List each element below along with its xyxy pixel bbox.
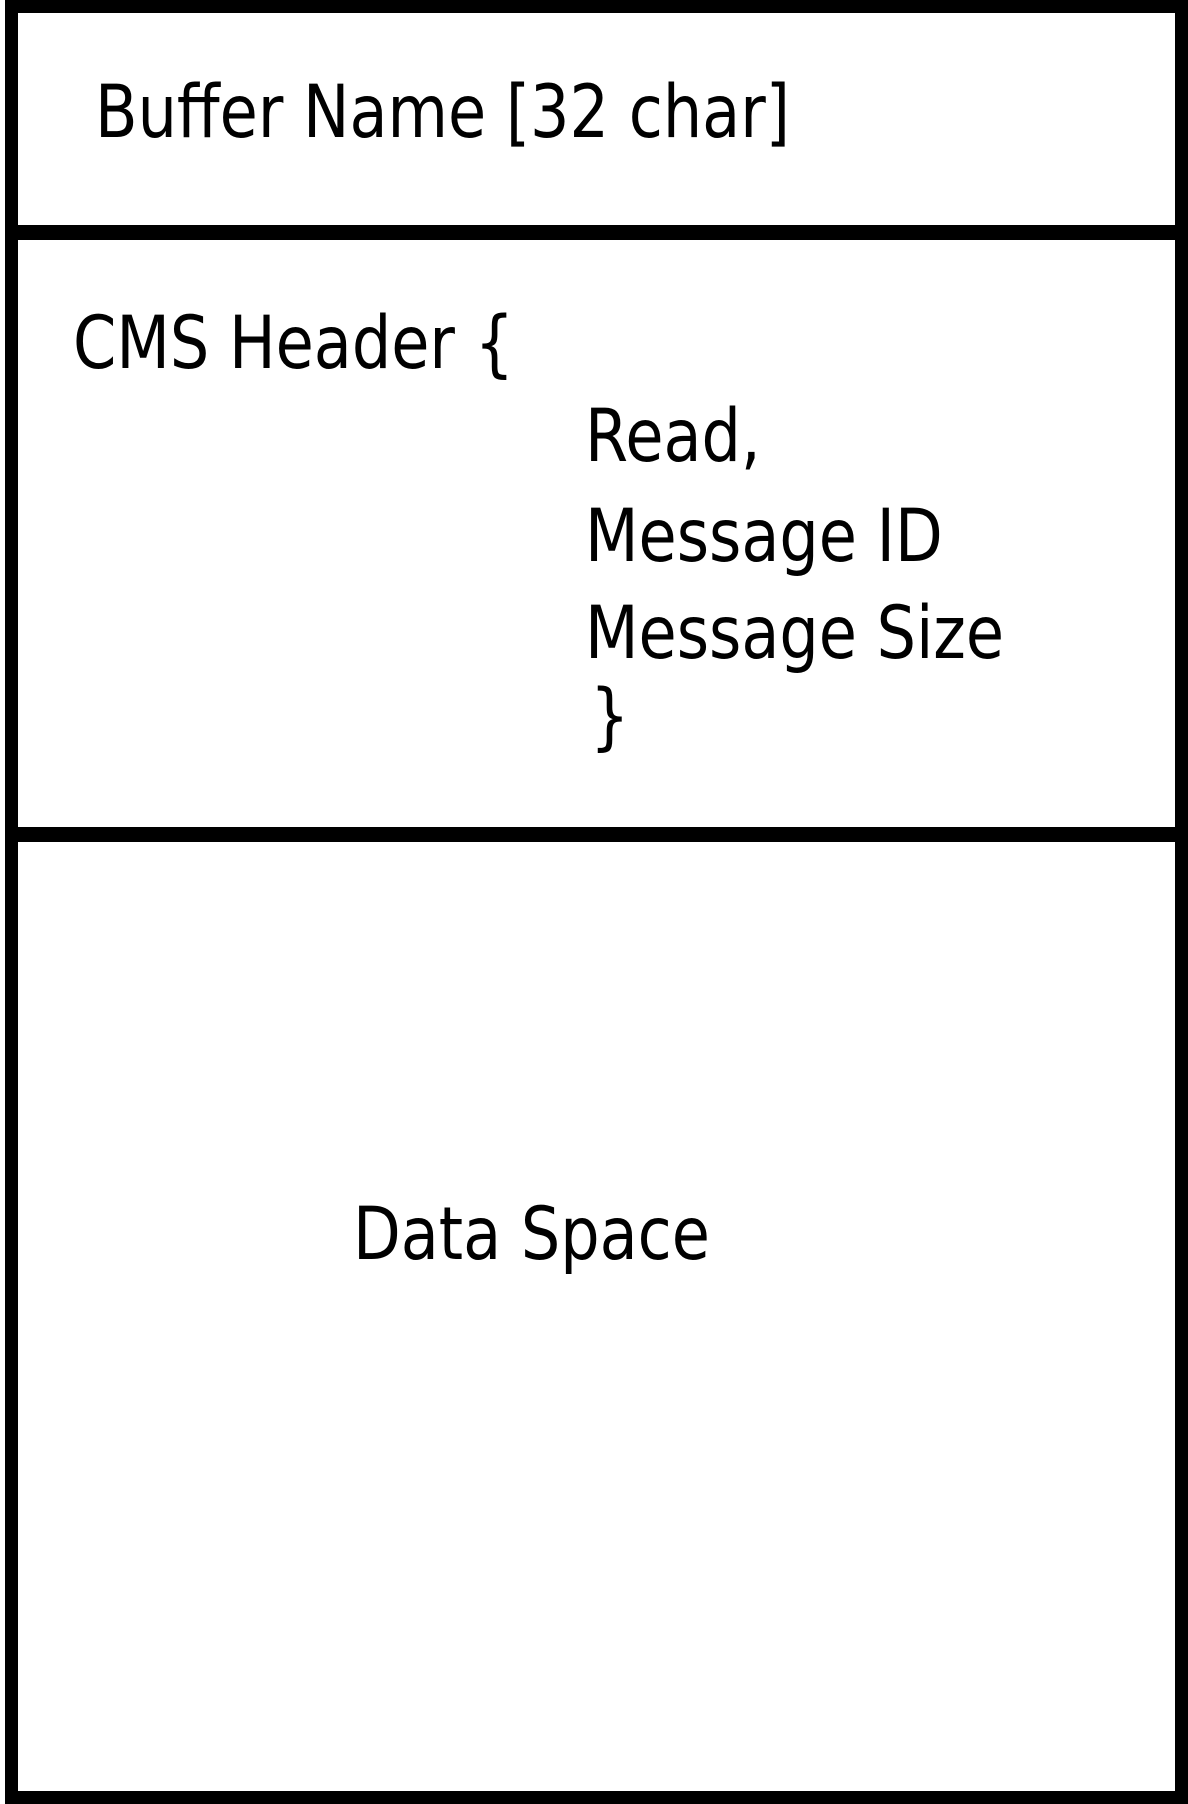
divider-name-header xyxy=(18,225,1175,240)
buffer-outline-border xyxy=(5,0,1188,1804)
cms-header-close-label: } xyxy=(590,680,629,753)
data-space-label: Data Space xyxy=(353,1198,710,1271)
cms-header-open-label: CMS Header { xyxy=(73,307,514,380)
divider-header-data xyxy=(18,827,1175,842)
cms-field-read: Read, xyxy=(585,400,761,473)
buffer-layout-diagram: Buffer Name [32 char] CMS Header { Read,… xyxy=(0,0,1188,1804)
cms-field-message-size: Message Size xyxy=(585,597,1004,670)
buffer-name-label: Buffer Name [32 char] xyxy=(95,76,790,149)
cms-field-message-id: Message ID xyxy=(585,500,943,573)
